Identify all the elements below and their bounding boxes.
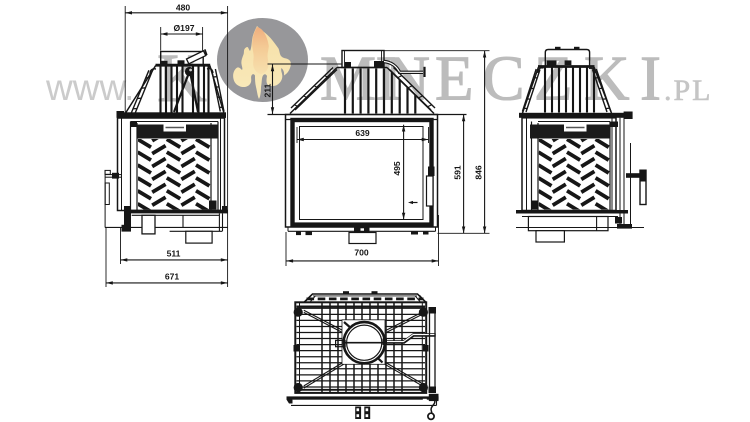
svg-text:E: E <box>435 44 473 114</box>
svg-text:I: I <box>640 44 661 114</box>
svg-text:700: 700 <box>354 247 369 257</box>
svg-text:511: 511 <box>167 248 181 258</box>
svg-text:.PL: .PL <box>664 74 713 107</box>
svg-text:495: 495 <box>392 161 402 176</box>
svg-text:846: 846 <box>473 165 483 180</box>
svg-text:671: 671 <box>165 271 180 281</box>
svg-text:480: 480 <box>176 2 191 12</box>
svg-text:211: 211 <box>262 83 272 97</box>
svg-text:www.: www. <box>45 67 134 108</box>
svg-text:C: C <box>483 44 525 114</box>
svg-text:639: 639 <box>355 128 370 138</box>
svg-text:K: K <box>584 44 630 114</box>
svg-text:591: 591 <box>452 165 462 180</box>
svg-text:Ø197: Ø197 <box>173 23 194 33</box>
